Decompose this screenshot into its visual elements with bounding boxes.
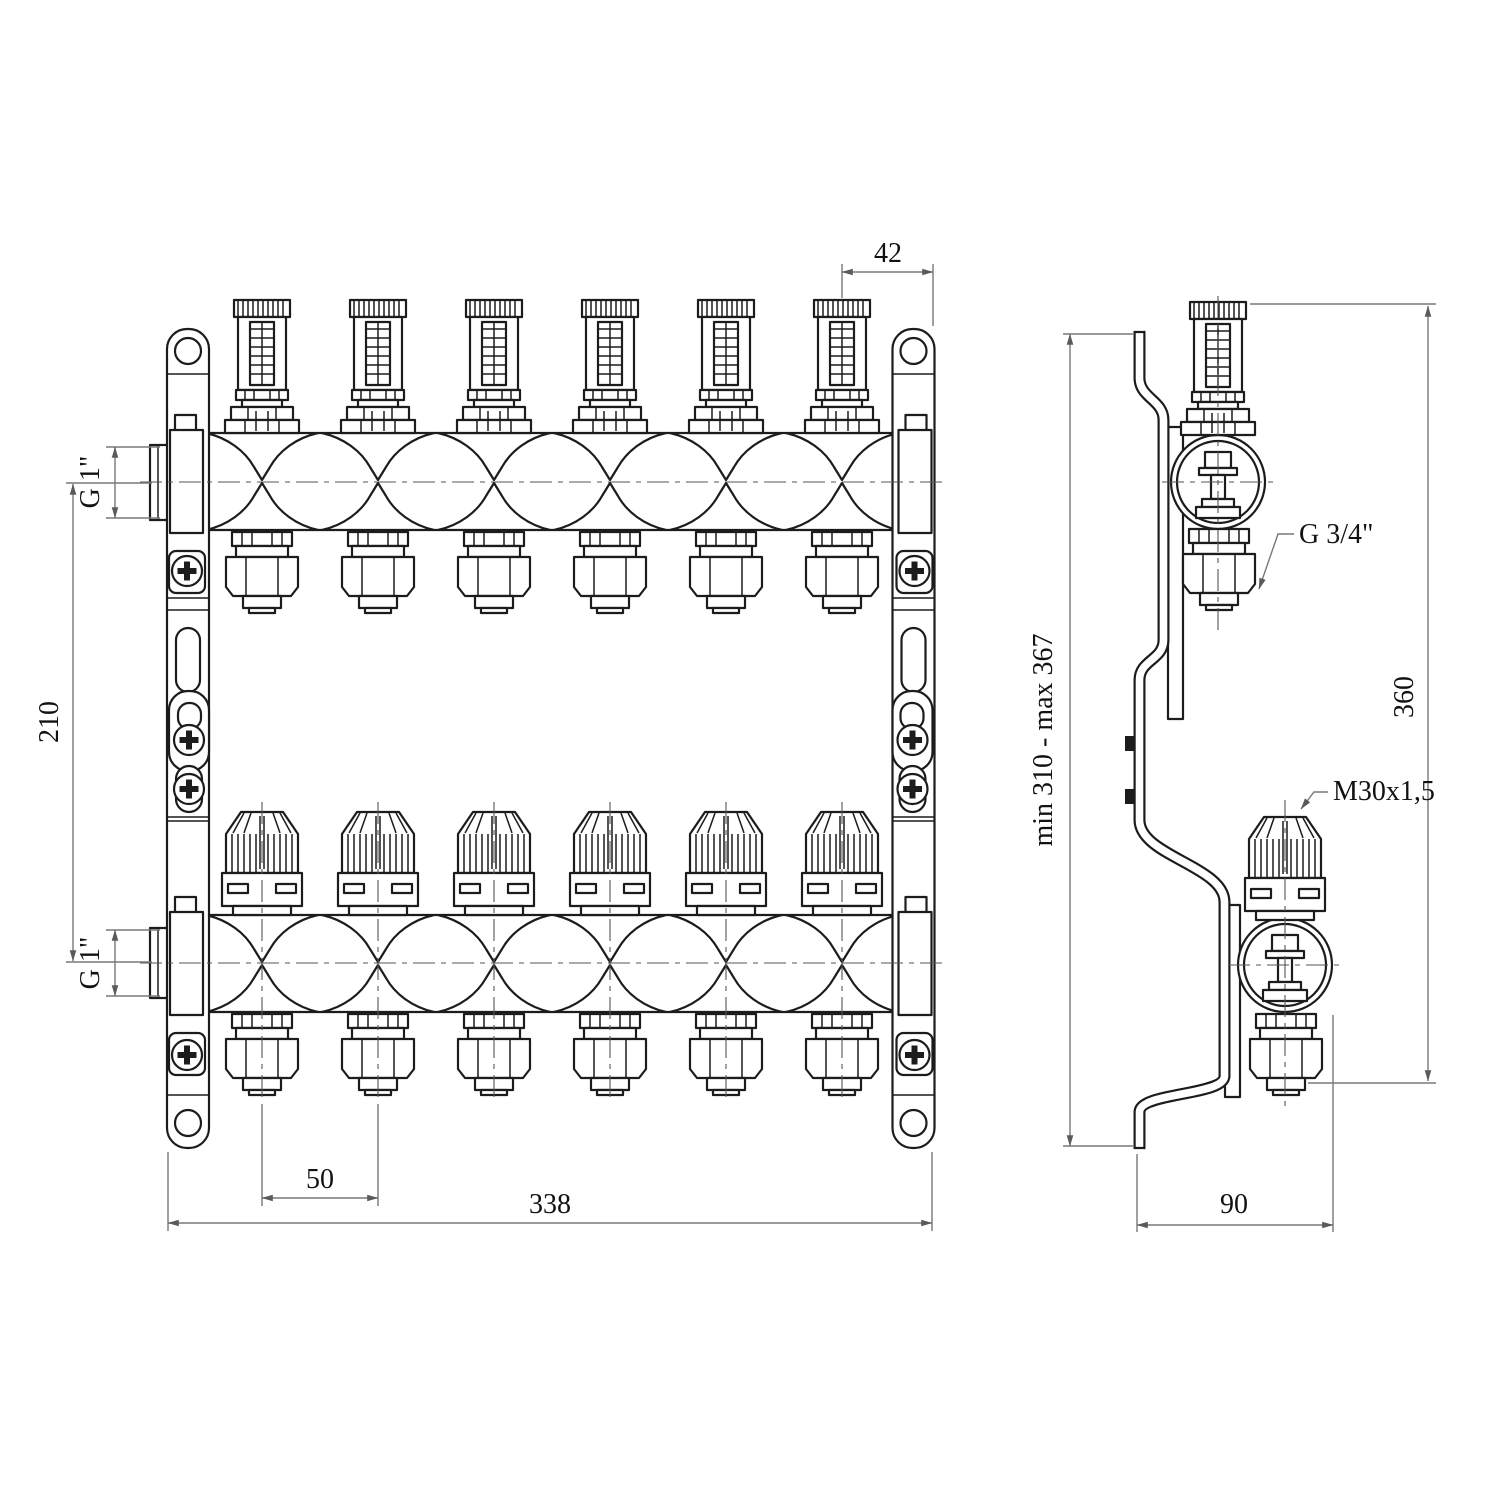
dim-text-360: 360 [1389, 676, 1420, 718]
dim-text-g1-bottom: G 1" [75, 937, 106, 990]
technical-drawing-page: 42 G 1" 210 G 1" 50 [0, 0, 1500, 1500]
dim-row-spacing: 210 [34, 483, 152, 962]
flow-meter [573, 300, 647, 433]
return-outlet-fittings [226, 1014, 878, 1095]
g34-fitting [1183, 529, 1255, 610]
flow-meter [457, 300, 531, 433]
supply-outlet-fittings [226, 532, 878, 613]
label-outlet-connection: G 3/4" [1259, 519, 1373, 589]
side-view [1125, 296, 1344, 1148]
dim-mount-height: min 310 - max 367 [1028, 334, 1133, 1146]
flow-meter [225, 300, 299, 433]
flow-meter [341, 300, 415, 433]
label-valve-thread: M30x1,5 [1301, 776, 1435, 809]
front-view [140, 300, 948, 1148]
left-mounting-bracket [167, 329, 209, 1148]
dim-text-90: 90 [1220, 1189, 1248, 1220]
right-mounting-bracket [893, 329, 935, 1148]
flow-meters [225, 300, 879, 433]
dim-text-g1-top: G 1" [75, 456, 106, 509]
flow-meter [805, 300, 879, 433]
dim-text-210: 210 [34, 701, 65, 743]
bracket-screw [1125, 789, 1135, 804]
dim-text-mount-range: min 310 - max 367 [1028, 633, 1059, 846]
dim-total-width: 338 [168, 1152, 932, 1231]
manifold-drawing: 42 G 1" 210 G 1" 50 [0, 0, 1500, 1500]
label-text-m30: M30x1,5 [1333, 776, 1435, 807]
bracket-screw [1125, 736, 1135, 751]
label-text-g34: G 3/4" [1299, 519, 1373, 550]
dim-text-338: 338 [529, 1189, 571, 1220]
dim-text-50: 50 [306, 1164, 334, 1195]
valve-caps [222, 812, 882, 915]
flow-meter [689, 300, 763, 433]
dim-outlet-spacing: 50 [262, 1104, 378, 1206]
dim-text-42: 42 [874, 238, 902, 269]
